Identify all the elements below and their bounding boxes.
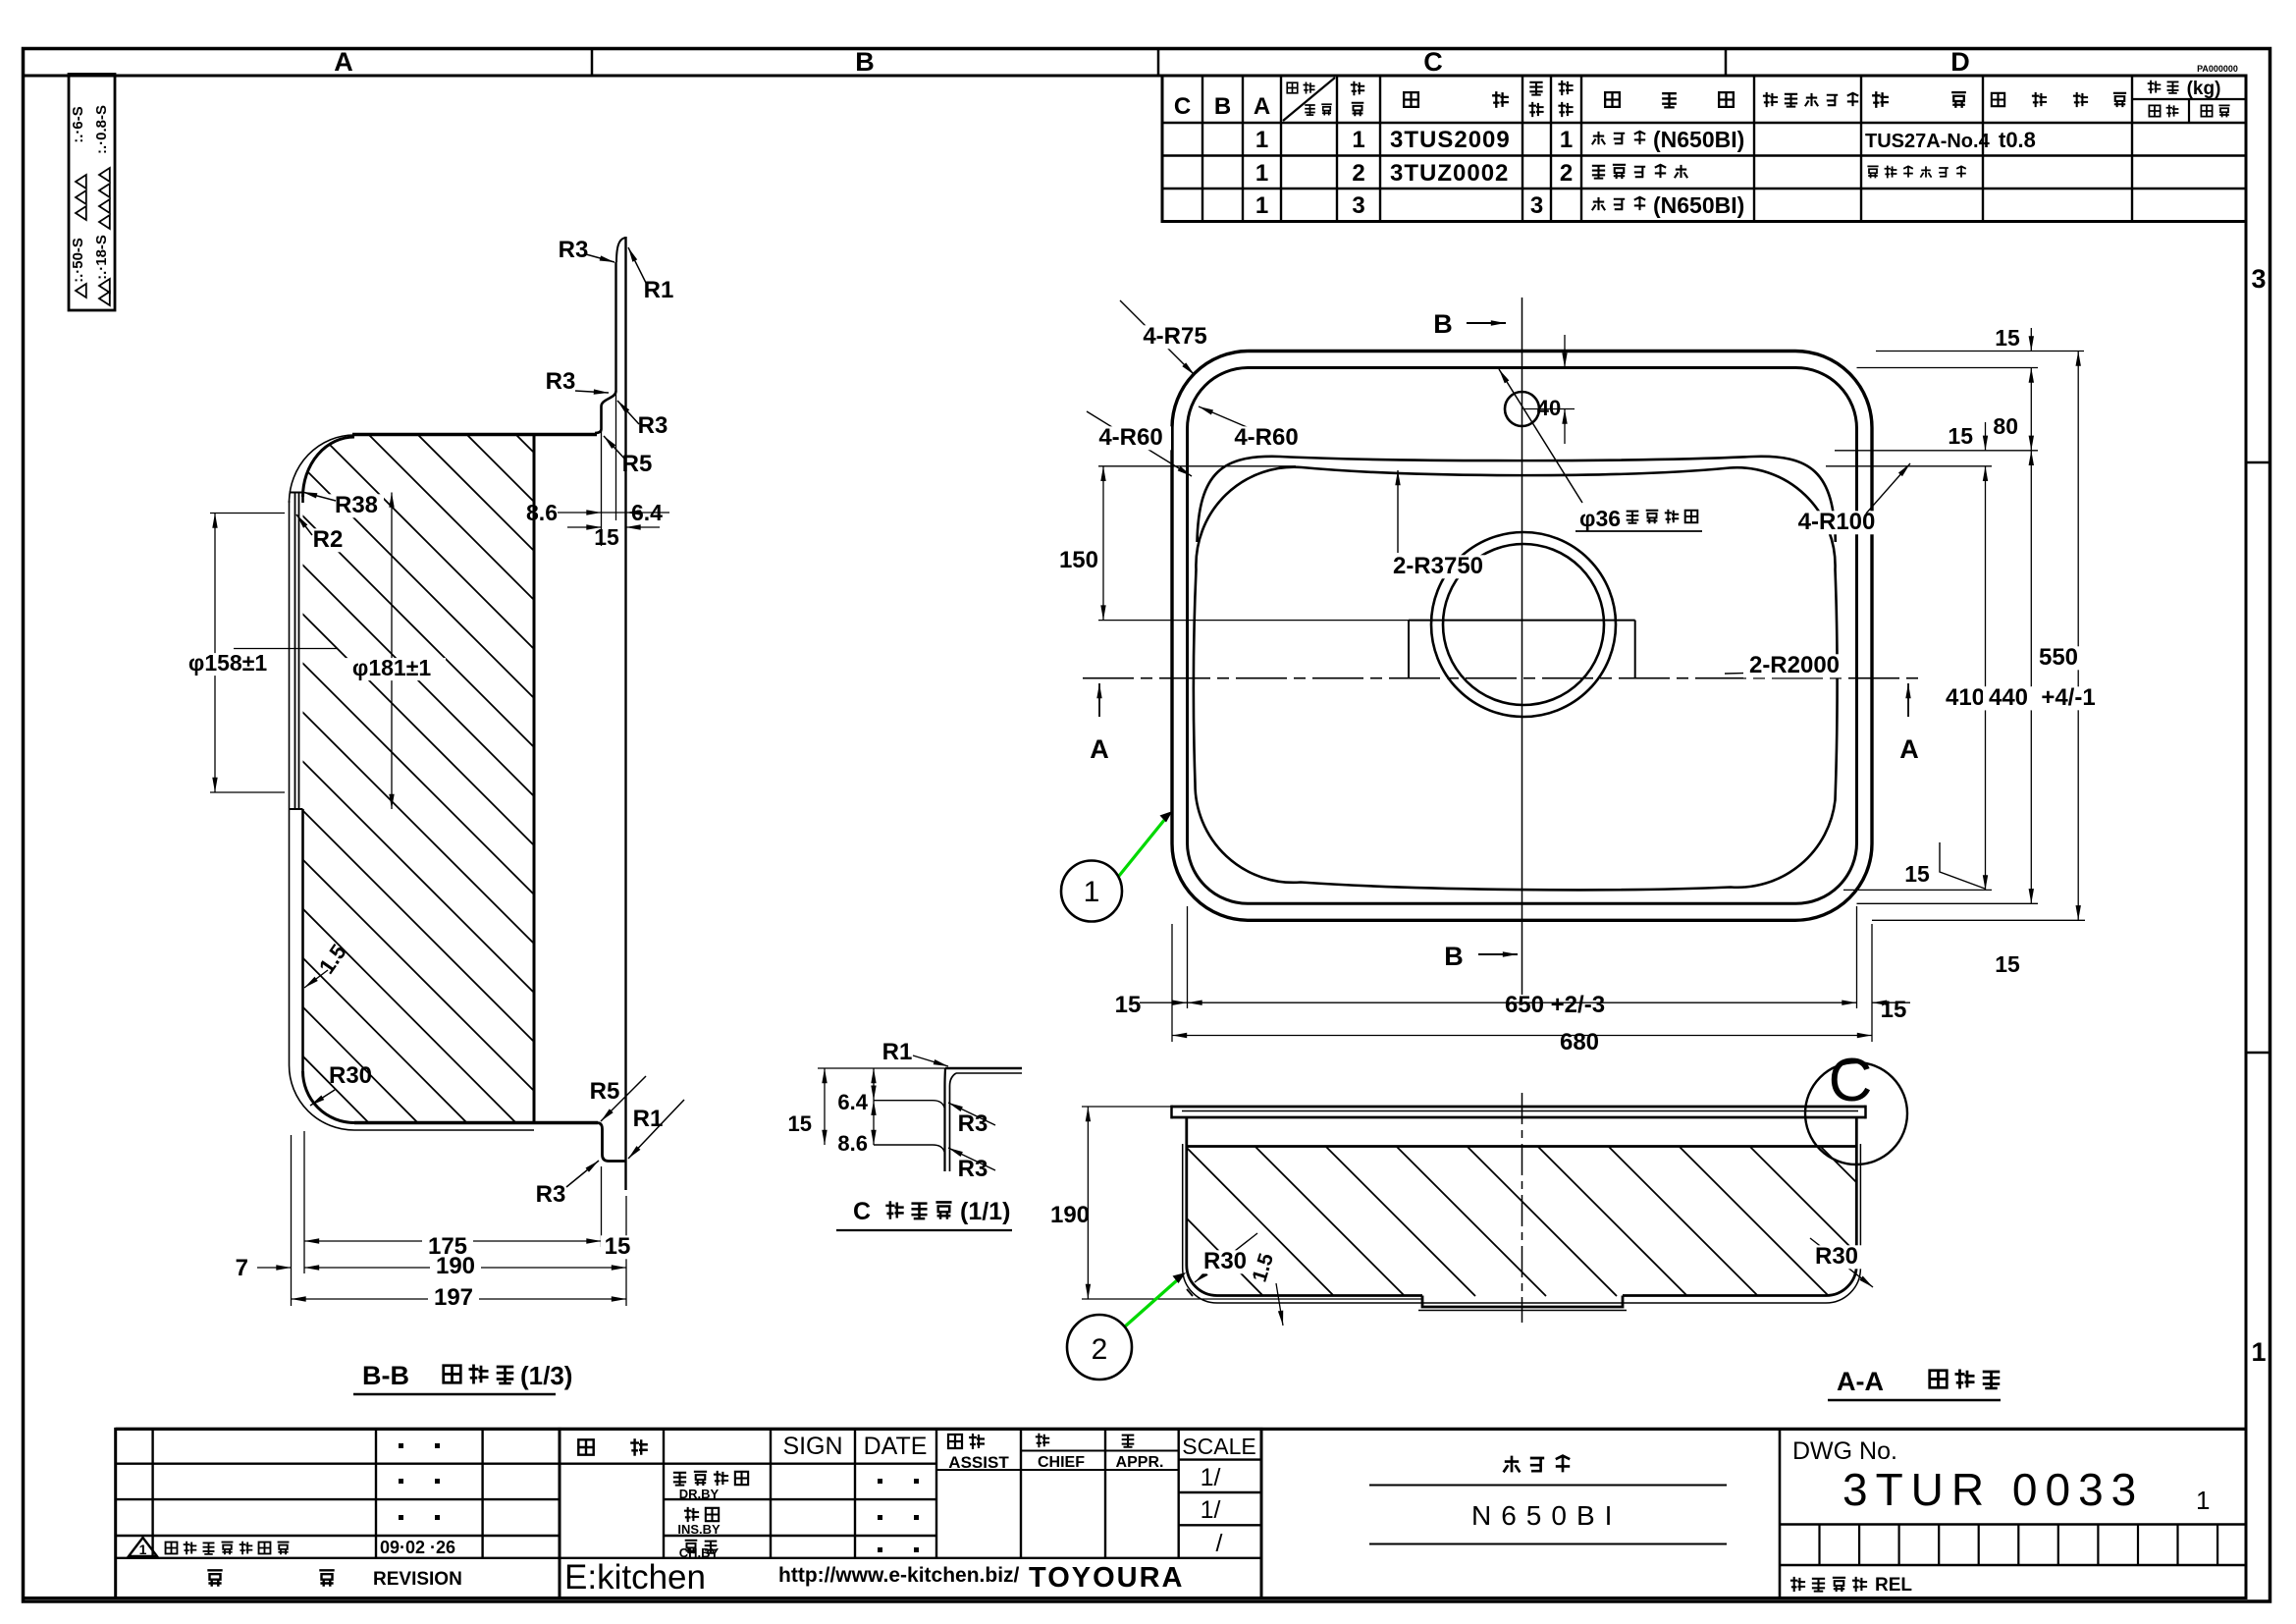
svg-text:R30: R30	[1815, 1243, 1858, 1270]
svg-text:440: 440	[1989, 684, 2028, 711]
svg-text:R3: R3	[559, 237, 589, 263]
svg-text:E:kitchen: E:kitchen	[564, 1558, 706, 1597]
svg-text:40: 40	[1537, 396, 1561, 420]
svg-text:R30: R30	[1203, 1248, 1247, 1274]
svg-text:R1: R1	[882, 1039, 913, 1065]
svg-text:4-R75: 4-R75	[1143, 323, 1206, 350]
svg-text:C: C	[1423, 47, 1443, 77]
svg-text:650 +2/-3: 650 +2/-3	[1505, 992, 1605, 1018]
svg-text:09·02 ·26: 09·02 ·26	[380, 1538, 455, 1557]
svg-text:4-R60: 4-R60	[1098, 424, 1162, 451]
svg-text:1: 1	[1255, 192, 1268, 219]
svg-text:15: 15	[1904, 861, 1930, 887]
svg-text:(1/3): (1/3)	[520, 1361, 572, 1390]
svg-text:R5: R5	[622, 451, 653, 477]
svg-text:680: 680	[1560, 1029, 1599, 1056]
svg-text:A: A	[1899, 734, 1919, 764]
svg-text:D: D	[1950, 47, 1970, 77]
svg-text:B: B	[1214, 93, 1231, 120]
svg-text:PA000000: PA000000	[2197, 64, 2238, 74]
svg-text:150: 150	[1059, 547, 1098, 573]
svg-text:1: 1	[1255, 127, 1268, 153]
svg-text:REVISION: REVISION	[373, 1569, 462, 1590]
svg-text:3TUS2009: 3TUS2009	[1390, 127, 1511, 153]
svg-text:t0.8: t0.8	[1999, 128, 2036, 152]
svg-text:R30: R30	[329, 1062, 372, 1089]
svg-text:15: 15	[594, 524, 619, 550]
svg-text:15: 15	[1115, 992, 1142, 1018]
svg-text:REL: REL	[1875, 1575, 1912, 1596]
svg-text:B-B: B-B	[362, 1361, 409, 1390]
svg-text:15: 15	[1995, 325, 2020, 351]
svg-text:15: 15	[788, 1111, 812, 1136]
svg-text:R2: R2	[313, 526, 344, 553]
svg-text:1: 1	[1084, 876, 1100, 908]
svg-text:(1/1): (1/1)	[960, 1198, 1010, 1225]
svg-text:8.6: 8.6	[526, 500, 558, 525]
svg-text:B: B	[1444, 942, 1464, 971]
svg-text:R3: R3	[638, 412, 668, 439]
svg-text:8.6: 8.6	[837, 1131, 868, 1156]
svg-text:DATE: DATE	[864, 1433, 928, 1460]
svg-text:DWG No.: DWG No.	[1792, 1437, 1897, 1465]
svg-text:80: 80	[1993, 413, 2018, 439]
svg-text:B: B	[1433, 309, 1453, 339]
svg-text:φ158±1: φ158±1	[188, 650, 267, 676]
svg-text:A: A	[1254, 93, 1270, 120]
svg-text:(N650BI): (N650BI)	[1653, 127, 1744, 152]
svg-text::.·50-S: :.·50-S	[70, 238, 86, 283]
svg-text:6.4: 6.4	[837, 1090, 868, 1114]
svg-text:15: 15	[1948, 423, 1973, 449]
svg-text:/: /	[1216, 1530, 1223, 1557]
svg-text:1: 1	[1352, 127, 1364, 153]
svg-text:C: C	[853, 1198, 871, 1225]
svg-text:R3: R3	[536, 1181, 566, 1208]
svg-text::.·0.8-S: :.·0.8-S	[93, 105, 110, 154]
svg-text:C: C	[1174, 93, 1191, 120]
svg-text:2: 2	[1092, 1333, 1108, 1366]
svg-text:φ36: φ36	[1579, 506, 1621, 531]
svg-text:+4/-1: +4/-1	[2041, 684, 2095, 711]
svg-text:(N650BI): (N650BI)	[1653, 192, 1744, 218]
svg-text:C: C	[1829, 1047, 1873, 1114]
svg-text:N650BI: N650BI	[1471, 1500, 1622, 1531]
svg-text:1: 1	[1560, 127, 1573, 153]
svg-text:SIGN: SIGN	[782, 1433, 842, 1460]
svg-text:2-R3750: 2-R3750	[1393, 553, 1483, 579]
svg-text:3: 3	[2251, 264, 2266, 294]
svg-text:190: 190	[1050, 1202, 1090, 1228]
svg-text:TOYOURA: TOYOURA	[1029, 1562, 1184, 1594]
svg-text:INS.BY: INS.BY	[677, 1522, 721, 1537]
svg-text:B: B	[855, 47, 875, 77]
svg-text:410: 410	[1946, 684, 1985, 711]
svg-text:1: 1	[1255, 160, 1268, 187]
svg-text:15: 15	[1995, 951, 2020, 977]
svg-text:1/: 1/	[1201, 1496, 1221, 1524]
svg-text:15: 15	[1881, 997, 1907, 1023]
svg-text:3: 3	[1530, 192, 1543, 219]
svg-text:4-R60: 4-R60	[1234, 424, 1298, 451]
svg-text:R5: R5	[590, 1078, 620, 1105]
svg-text:R3: R3	[546, 368, 576, 395]
svg-text:R38: R38	[335, 492, 378, 518]
svg-text:1: 1	[2196, 1486, 2210, 1515]
svg-text:1: 1	[139, 1542, 147, 1557]
svg-text:3TUZ0002: 3TUZ0002	[1390, 160, 1509, 187]
svg-text:3: 3	[1352, 192, 1364, 219]
svg-text:197: 197	[434, 1284, 473, 1311]
svg-text:6.4: 6.4	[631, 500, 663, 525]
svg-text:TUS27A-No.4: TUS27A-No.4	[1865, 131, 1991, 152]
svg-text:1/: 1/	[1201, 1464, 1221, 1491]
svg-text:APPR.: APPR.	[1116, 1454, 1164, 1471]
svg-text:φ181±1: φ181±1	[352, 655, 431, 680]
svg-text:190: 190	[436, 1253, 475, 1279]
svg-text:2: 2	[1560, 160, 1573, 187]
svg-text:R1: R1	[633, 1106, 664, 1132]
svg-text:15: 15	[605, 1233, 631, 1260]
svg-text:A: A	[1090, 734, 1109, 764]
svg-text:4-R100: 4-R100	[1798, 509, 1876, 535]
svg-text:CHIEF: CHIEF	[1038, 1454, 1085, 1471]
svg-text:A: A	[334, 47, 353, 77]
svg-text:DR.BY: DR.BY	[679, 1487, 720, 1501]
svg-text:ASSIST: ASSIST	[948, 1453, 1009, 1472]
svg-text:1: 1	[2251, 1337, 2266, 1367]
svg-text:(kg): (kg)	[2187, 79, 2221, 99]
svg-text::.·6-S: :.·6-S	[70, 106, 86, 143]
svg-text:3TUR 0033: 3TUR 0033	[1842, 1464, 2144, 1515]
svg-text:2: 2	[1352, 160, 1364, 187]
svg-text:A-A: A-A	[1837, 1367, 1884, 1396]
svg-text:SCALE: SCALE	[1182, 1434, 1255, 1459]
svg-text:R1: R1	[644, 277, 674, 303]
svg-text:550: 550	[2039, 644, 2078, 671]
svg-text:7: 7	[236, 1255, 248, 1281]
svg-text::.·18-S: :.·18-S	[93, 235, 110, 280]
svg-text:2-R2000: 2-R2000	[1749, 652, 1840, 678]
svg-text:http://www.e-kitchen.biz/: http://www.e-kitchen.biz/	[778, 1564, 1020, 1587]
